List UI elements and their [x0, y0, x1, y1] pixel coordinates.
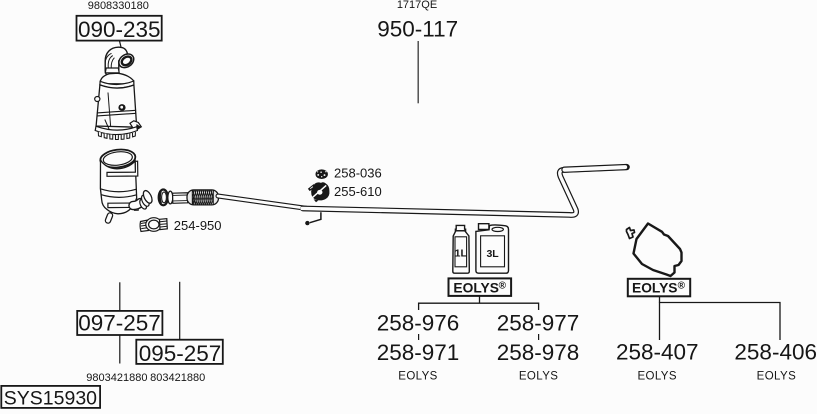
svg-text:258-978: 258-978: [497, 340, 580, 365]
svg-text:258-407: 258-407: [616, 340, 699, 365]
svg-text:1717QE: 1717QE: [397, 0, 437, 11]
svg-text:090-235: 090-235: [78, 17, 161, 42]
svg-text:097-257: 097-257: [78, 310, 161, 335]
svg-text:®: ®: [678, 280, 686, 291]
svg-text:®: ®: [499, 280, 507, 291]
svg-text:1L: 1L: [455, 247, 468, 259]
svg-text:255-610: 255-610: [334, 184, 382, 199]
svg-text:258-036: 258-036: [334, 166, 382, 181]
svg-text:254-950: 254-950: [174, 218, 222, 233]
svg-text:EOLYS: EOLYS: [632, 281, 678, 296]
svg-text:258-971: 258-971: [377, 340, 460, 365]
svg-text:803421880: 803421880: [150, 372, 205, 384]
svg-text:EOLYS: EOLYS: [453, 280, 499, 295]
svg-text:EOLYS: EOLYS: [398, 371, 438, 383]
svg-text:EOLYS: EOLYS: [519, 371, 559, 383]
svg-text:EOLYS: EOLYS: [757, 371, 797, 383]
svg-text:EOLYS: EOLYS: [637, 371, 677, 383]
svg-text:9803421880: 9803421880: [86, 372, 147, 384]
svg-text:950-117: 950-117: [377, 17, 458, 42]
svg-text:3L: 3L: [486, 248, 499, 260]
svg-text:258-406: 258-406: [734, 340, 817, 365]
svg-text:258-976: 258-976: [377, 310, 460, 335]
svg-text:095-257: 095-257: [139, 341, 222, 366]
svg-text:SYS15930: SYS15930: [4, 387, 97, 409]
svg-text:258-977: 258-977: [497, 310, 580, 335]
svg-text:9808330180: 9808330180: [88, 0, 149, 12]
